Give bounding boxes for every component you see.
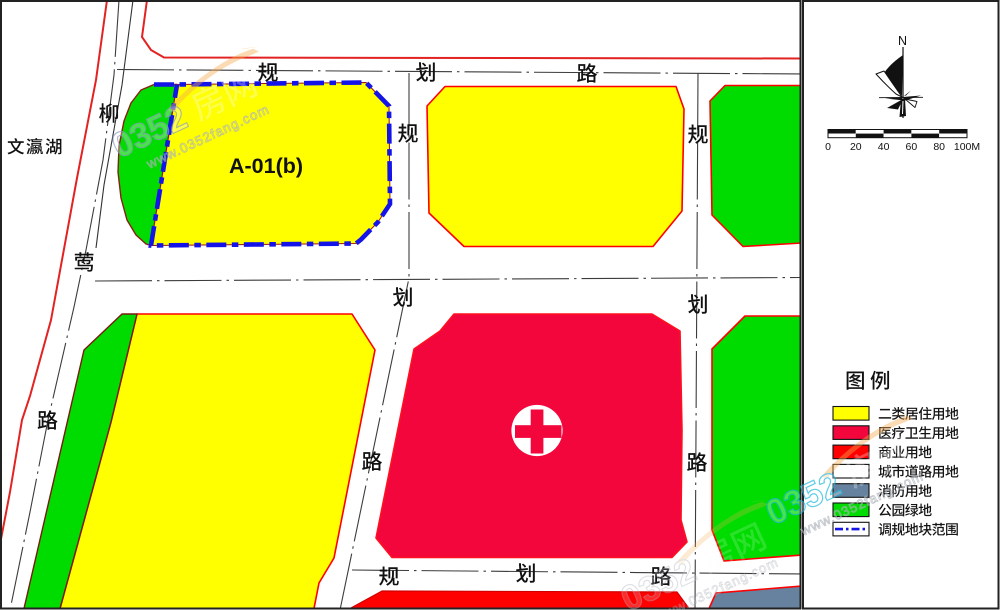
svg-text:60: 60 (906, 141, 918, 153)
svg-text:80: 80 (933, 141, 945, 153)
svg-text:40: 40 (878, 141, 890, 153)
svg-text:20: 20 (850, 141, 862, 153)
svg-text:100M: 100M (954, 141, 980, 153)
svg-text:A-01(b): A-01(b) (229, 154, 303, 178)
svg-text:N: N (898, 34, 907, 48)
svg-text:0: 0 (825, 141, 831, 153)
